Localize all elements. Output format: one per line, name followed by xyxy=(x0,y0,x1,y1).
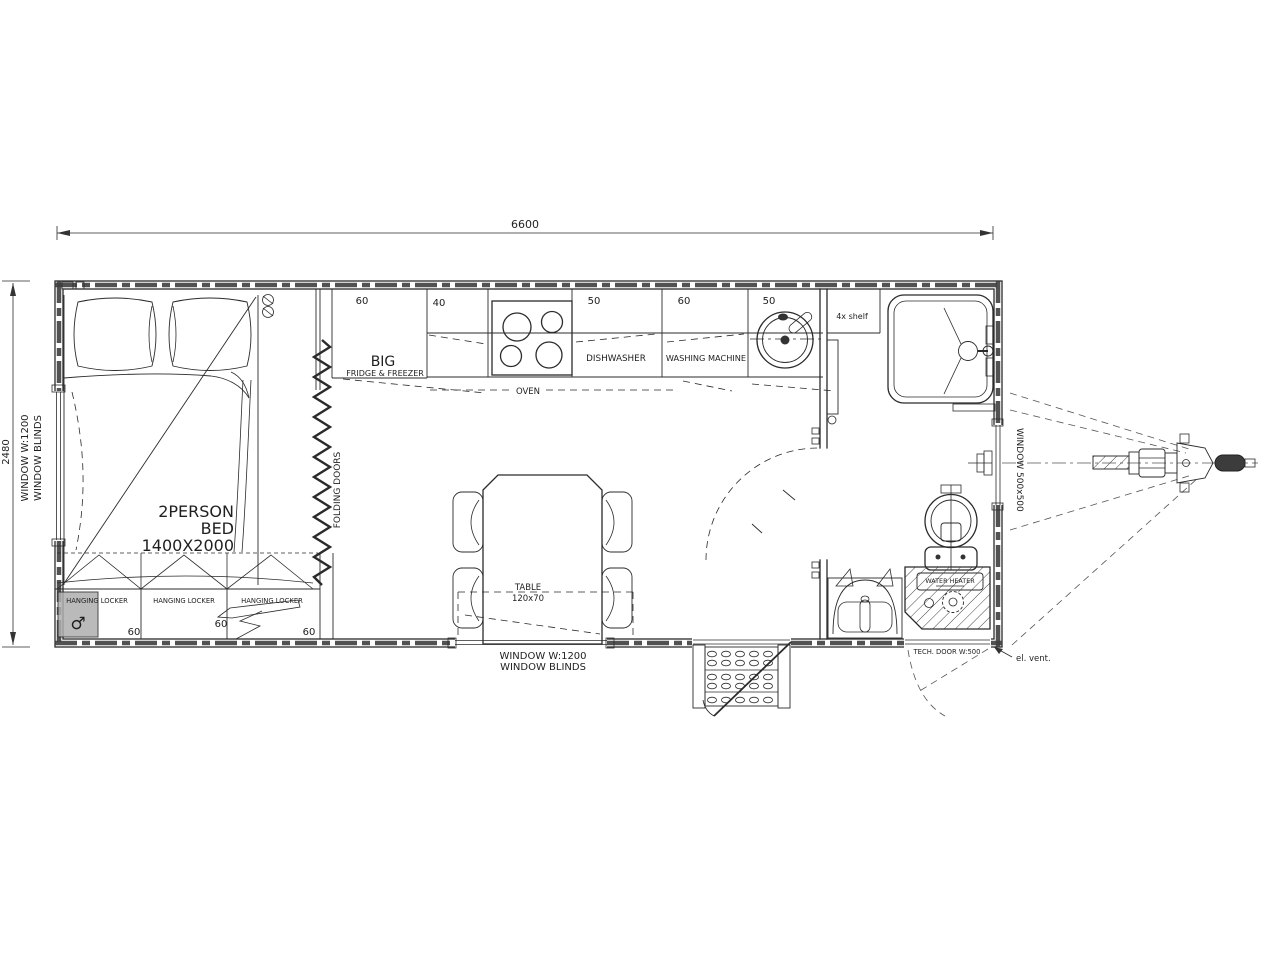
folding-door-zigzag xyxy=(314,340,330,585)
table-label-line2: 120x70 xyxy=(512,594,544,604)
entrance-steps xyxy=(693,642,791,716)
tall-cabinet xyxy=(827,340,838,414)
dining-window-label-2: WINDOW BLINDS xyxy=(500,662,586,673)
bathroom-sink xyxy=(828,569,902,638)
bed-label-line3: 1400X2000 xyxy=(142,536,234,555)
oven-label: OVEN xyxy=(516,387,540,397)
bathroom-window-label: WINDOW 500x500 xyxy=(1014,428,1024,512)
cooktop xyxy=(492,301,572,375)
hitch-assembly xyxy=(1093,434,1255,492)
locker-dim-1: 60 xyxy=(128,627,141,638)
fridge-label-line2: FRIDGE & FREEZER xyxy=(346,369,424,378)
pump xyxy=(943,592,964,613)
hanging-lockers: ♂ HANGING LOCKER HANGING LOCKER HANGING … xyxy=(55,553,333,639)
burner xyxy=(503,313,531,341)
water-heater: WATER HEATER xyxy=(905,567,990,629)
locker-dim-3: 60 xyxy=(303,627,316,638)
overall-length-dimension: 6600 xyxy=(511,218,539,231)
chair xyxy=(453,492,483,552)
water-heater-label: WATER HEATER xyxy=(925,577,975,585)
hanging-locker-label-2: HANGING LOCKER xyxy=(153,597,215,605)
el-vent: el. vent. xyxy=(994,647,1051,664)
door-hinge xyxy=(812,428,819,434)
dimension-line-top: 6600 xyxy=(57,218,993,240)
coupling-head xyxy=(1215,455,1245,471)
clothes-rail-symbol xyxy=(57,555,313,589)
chair xyxy=(453,568,483,628)
bed: 2PERSON BED 1400X2000 xyxy=(64,295,258,585)
washing-machine-dim: 60 xyxy=(678,296,691,307)
tech-door-label: TECH. DOOR W:500 xyxy=(913,648,981,656)
fridge-label-line1: BIG xyxy=(371,354,396,370)
bathroom-window xyxy=(968,419,1003,510)
ironing-board xyxy=(218,600,300,639)
sink-dim: 50 xyxy=(763,296,776,307)
floor-plan-page: 6600 2480 xyxy=(0,0,1280,960)
cabinet-dim: 40 xyxy=(433,298,446,309)
tap xyxy=(860,600,870,632)
kitchen: 60 40 50 60 50 BIG FRIDGE & FREEZER OVEN… xyxy=(332,289,835,397)
el-vent-label: el. vent. xyxy=(1016,654,1051,664)
shower-head xyxy=(959,342,978,361)
hanging-locker-label-1: HANGING LOCKER xyxy=(66,597,128,605)
trailer-drawbar xyxy=(1002,393,1258,645)
burner xyxy=(501,346,522,367)
dining-table: TABLE 120x70 xyxy=(453,475,633,644)
male-symbol: ♂ xyxy=(70,614,85,634)
bedroom-window xyxy=(52,385,65,546)
bathroom-shelf: 4x shelf xyxy=(827,289,880,424)
dishwasher-dim: 50 xyxy=(588,296,601,307)
bathroom-partition-wall xyxy=(706,289,827,639)
locker-dim-2: 60 xyxy=(215,619,228,630)
overall-width-dimension: 2480 xyxy=(1,439,12,464)
jockey-wheel xyxy=(1180,434,1189,443)
shower xyxy=(888,295,995,411)
dining-window xyxy=(448,638,614,648)
folding-doors: FOLDING DOORS xyxy=(314,289,343,585)
entrance-door-leaf xyxy=(714,642,791,716)
socket-symbol-icon xyxy=(263,295,274,318)
washing-machine-label: WASHING MACHINE xyxy=(666,353,746,363)
chair xyxy=(602,568,632,628)
folding-doors-label: FOLDING DOORS xyxy=(333,451,343,528)
chair xyxy=(602,492,632,552)
bedroom-window-label-2: WINDOW BLINDS xyxy=(33,415,44,501)
bedroom: 2PERSON BED 1400X2000 ♂ HANGING LOCKER H… xyxy=(20,289,343,639)
bedroom-window-label-1: WINDOW W:1200 xyxy=(20,414,31,501)
dining-window-label-1: WINDOW W:1200 xyxy=(499,651,586,662)
door-hinge xyxy=(812,562,819,568)
bathroom-door-swing xyxy=(706,448,818,560)
burner xyxy=(542,312,563,333)
faucet xyxy=(787,311,813,335)
tech-door: TECH. DOOR W:500 xyxy=(908,648,988,716)
burner xyxy=(536,342,562,368)
pillow xyxy=(169,298,251,371)
drain xyxy=(781,336,790,345)
floor-plan-drawing: 6600 2480 xyxy=(0,0,1280,960)
shelf-label: 4x shelf xyxy=(836,312,868,321)
table xyxy=(483,475,602,644)
toilet xyxy=(925,485,977,570)
pillow xyxy=(74,298,156,371)
table-label-line1: TABLE xyxy=(514,583,541,593)
hanging-locker-label-3: HANGING LOCKER xyxy=(241,597,303,605)
dishwasher-label: DISHWASHER xyxy=(586,354,646,364)
fridge-dim: 60 xyxy=(356,296,369,307)
step-grating xyxy=(708,651,773,703)
